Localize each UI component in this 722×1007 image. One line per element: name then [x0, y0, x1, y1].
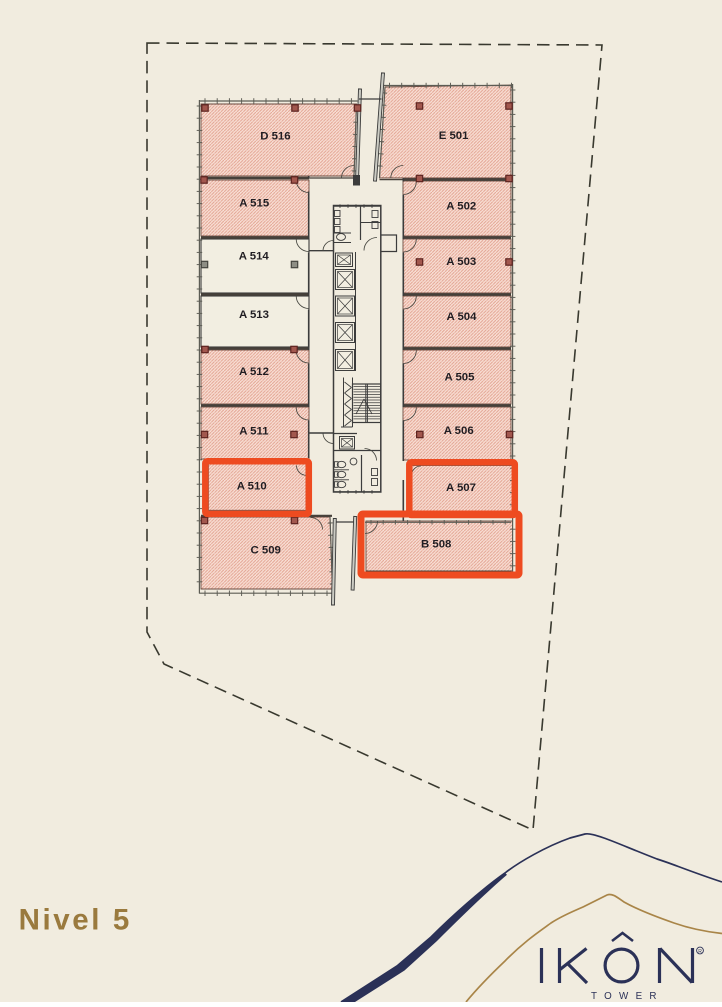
svg-text:A 502: A 502 [446, 200, 476, 212]
svg-text:A 503: A 503 [446, 256, 476, 268]
svg-text:A 515: A 515 [239, 197, 270, 209]
svg-text:A 514: A 514 [239, 250, 270, 262]
svg-text:Nivel 5: Nivel 5 [19, 904, 132, 937]
svg-text:C 509: C 509 [250, 544, 280, 556]
svg-text:A 511: A 511 [239, 425, 269, 437]
svg-text:A 507: A 507 [446, 482, 476, 494]
svg-text:A 506: A 506 [444, 425, 474, 437]
svg-text:D 516: D 516 [260, 130, 290, 142]
svg-text:A 513: A 513 [239, 309, 269, 321]
svg-text:B 508: B 508 [421, 539, 451, 551]
svg-text:A 505: A 505 [445, 372, 476, 384]
svg-text:A 504: A 504 [447, 311, 478, 323]
svg-text:A 510: A 510 [237, 480, 267, 492]
svg-text:R: R [698, 949, 702, 955]
svg-text:E 501: E 501 [439, 130, 469, 142]
svg-text:A 512: A 512 [239, 366, 269, 378]
svg-text:TOWER: TOWER [591, 991, 664, 1002]
